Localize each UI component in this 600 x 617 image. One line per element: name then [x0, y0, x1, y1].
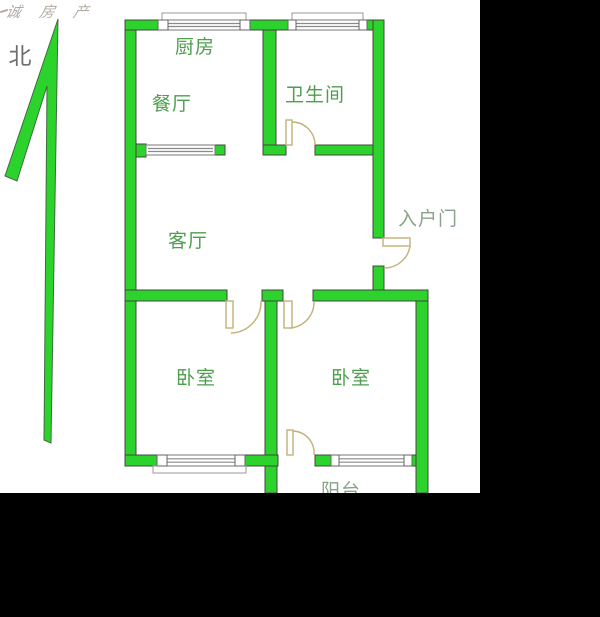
- room-label-living-room: 客厅: [151, 231, 225, 252]
- bedroom-left-window: [153, 455, 246, 473]
- wall-bath-bottom-a: [263, 145, 286, 155]
- wall-right-upper: [373, 20, 384, 238]
- wall-left-outer: [125, 20, 136, 466]
- north-label: 北: [7, 45, 33, 70]
- bedroom-left-door: [226, 301, 261, 333]
- letterbox-bottom: [0, 493, 600, 617]
- room-label-bedroom-left: 卧室: [159, 368, 233, 389]
- room-label-dining-room: 餐厅: [136, 94, 208, 115]
- bedroom-right-window: [331, 455, 412, 466]
- bedroom-right-door: [284, 301, 314, 328]
- balcony-door: [287, 430, 314, 455]
- entry-door: [383, 238, 410, 268]
- wall-right-outer: [416, 301, 428, 493]
- wall-bedrooms-top-c: [313, 290, 428, 301]
- wall-bedrooms-bottom-c: [315, 455, 331, 466]
- wall-kitchen-bath-divider: [263, 30, 276, 155]
- floorplan-canvas: 诚 房 产 北 厨房 餐厅 卫生间 客厅 入户门 卧室 卧室 阳台: [0, 0, 600, 617]
- room-label-bathroom: 卫生间: [277, 85, 353, 106]
- wall-dining-stub-nub: [136, 144, 146, 157]
- wall-bedrooms-top-b: [262, 290, 283, 301]
- room-label-kitchen: 厨房: [159, 37, 231, 58]
- kitchen-window: [158, 13, 250, 30]
- bathroom-door: [286, 120, 315, 145]
- watermark-text: 诚 房 产: [4, 1, 98, 22]
- dining-living-window: [146, 145, 215, 155]
- north-arrow-icon: [5, 19, 58, 443]
- wall-top-b: [250, 20, 288, 30]
- wall-bedrooms-bottom-a: [125, 455, 157, 466]
- wall-top-a: [125, 20, 158, 30]
- wall-bedrooms-bottom-b: [245, 455, 278, 466]
- bathroom-window: [288, 13, 367, 30]
- label-entry-door: 入户门: [392, 209, 464, 230]
- room-label-bedroom-right: 卧室: [314, 368, 388, 389]
- wall-bedrooms-top-a: [125, 290, 227, 301]
- wall-dining-stub-cap: [215, 145, 225, 155]
